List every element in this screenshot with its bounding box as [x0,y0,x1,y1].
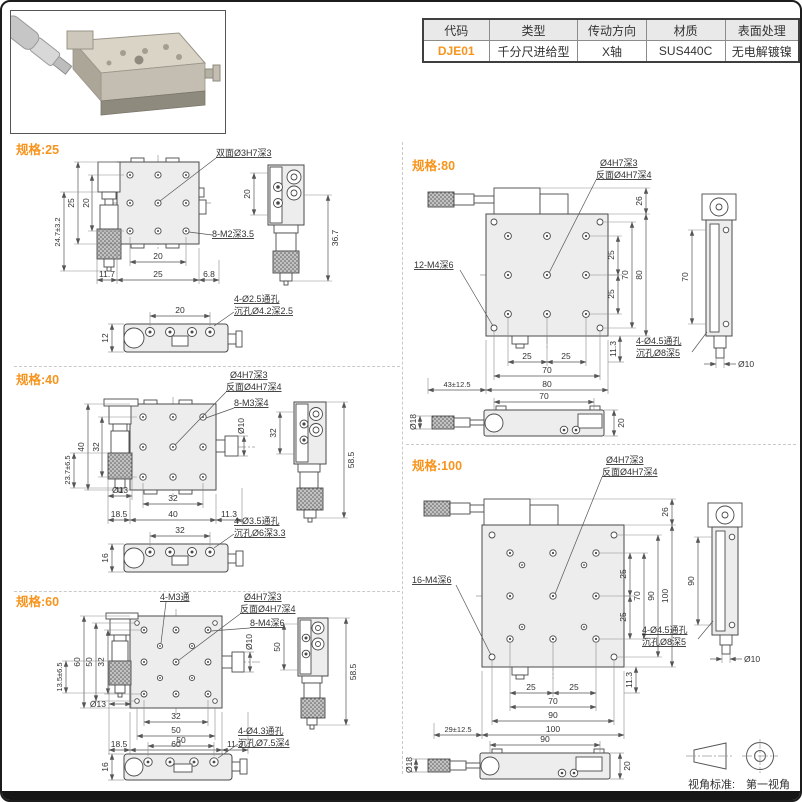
dim-micrometer: 29±12.5 [444,725,471,734]
callout-counterbore: 沉孔Ø6深3.3 [234,528,286,538]
side-view: 70 Ø10 4-Ø4.5通孔 沉孔Ø8深5 [636,194,754,369]
value-surface: 无电解镀镍 [725,41,799,63]
dim-pitch2: 25 [618,612,628,622]
dim-h-holes: 32 [91,442,101,452]
dim-base-height: 12 [100,333,110,343]
projection-value: 第一视角 [746,777,790,791]
dim-h-holes: 70 [632,591,642,601]
value-material: SUS440C [646,41,725,63]
dim-side-total: 36.7 [330,229,340,246]
callout-counterbore: 沉孔Ø8深5 [636,348,680,358]
dim-h-holes: 32 [96,657,106,667]
dim-side-holes: 70 [680,272,690,282]
callout-center-hole: Ø4H7深3 [230,370,268,380]
dim-side-diameter: Ø10 [744,654,760,664]
dim-knob-diameter: Ø10 [236,418,246,434]
dim-w-holes: 32 [171,711,181,721]
bottom-view: 70 Ø18 20 [408,391,626,436]
dim-base-width: 70 [539,391,549,401]
dim-mic-diameter: Ø13 [90,699,106,709]
product-photo-illustration [11,11,223,131]
dim-micrometer: 24.7±3.2 [53,217,62,246]
dim-side-holes: 32 [268,428,278,438]
dim-w-mic: 11.7 [99,269,115,279]
dim-knob-diameter: Ø10 [244,634,254,650]
bottom-view: 32 16 4-Ø3.5通孔 沉孔Ø6深3.3 [100,516,286,572]
callout-counterbore: 沉孔Ø8深5 [642,637,686,647]
section-spec-40: 规格:40 [12,368,392,592]
callout-through-hole: 4-Ø4.3通孔 [238,726,284,736]
section-title: 规格:100 [412,458,462,473]
value-type: 千分尺进给型 [489,41,578,63]
callout-grid-holes: 12-M4深6 [414,260,454,270]
front-view [428,188,618,348]
dim-mic-diameter: Ø13 [112,485,128,495]
dim-side-total: 58.5 [346,451,356,468]
dim-side-holes: 50 [272,642,282,652]
col-type: 类型 [489,19,578,41]
dim-w-outer: 40 [168,509,178,519]
callout-counterbore: 沉孔Ø4.2深2.5 [234,306,293,316]
dim-drop: 11.3 [608,341,618,357]
side-view: 32 58.5 [268,402,356,522]
callout-through-hole: 4-Ø4.5通孔 [636,336,682,346]
dim-w-right: 6.8 [203,269,215,279]
dim-w-holes: 70 [548,696,558,706]
callout-center-hole: 双面Ø3H7深3 [216,148,272,158]
dim-base-height: 16 [100,553,110,563]
section-title: 规格:40 [16,372,59,387]
micrometer-front [97,162,121,271]
dim-top: 26 [660,507,670,517]
column-separator [402,142,403,774]
callout-grid-holes: 8-M3深4 [234,398,269,408]
callout-center-hole: Ø4H7深3 [244,592,282,602]
callout-through-holes: 4-M3通 [160,592,190,602]
bottom-view: 20 12 4-Ø2.5通孔 沉孔Ø4.2深2.5 [100,294,293,352]
separator-80-100 [406,444,796,445]
callout-grid-holes: 8-M4深6 [250,618,285,628]
hole-grid [489,532,617,660]
dim-b2: 25 [561,351,571,361]
callout-center-hole-back: 反面Ø4H7深4 [226,382,282,392]
page-footer-bar [2,791,800,800]
callout-center-hole-back: 反面Ø4H7深4 [240,604,296,614]
dim-h-outer: 25 [66,198,76,208]
side-view: 50 58.5 [272,618,358,729]
section-spec-60: 规格:60 [12,592,392,788]
first-angle-symbol [686,739,778,773]
callout-grid-holes: 16-M4深6 [412,575,452,585]
col-drive: 传动方向 [578,19,646,41]
dim-w-mid: 90 [548,710,558,720]
micrometer-photo [11,11,75,78]
micrometer-top [424,499,558,525]
hole-grid [491,219,603,331]
dim-pitch2: 25 [606,289,616,299]
col-surface: 表面处理 [725,19,799,41]
dim-w-mic: 18.5 [111,509,128,519]
dim-base-width: 32 [175,525,185,535]
dim-h-outer: 60 [72,657,82,667]
bottom-view: 90 Ø18 20 [404,734,632,779]
dim-pitch1: 25 [606,250,616,260]
dim-w-mic: 18.5 [111,739,128,749]
callout-center-hole-back: 反面Ø4H7深4 [596,170,652,180]
dim-h-outer: 40 [76,442,86,452]
callout-through-hole: 4-Ø4.5通孔 [642,625,688,635]
dim-pitch1: 25 [618,569,628,579]
dim-base-height: 20 [616,418,626,428]
spec-value-row: DJE01 千分尺进给型 X轴 SUS440C 无电解镀镍 [423,41,799,63]
section-title: 规格:25 [16,142,59,157]
value-code: DJE01 [423,41,489,63]
micrometer-top [428,188,568,214]
front-view [106,609,260,715]
dim-side-holes: 90 [686,576,696,586]
col-code: 代码 [423,19,489,41]
dim-h-mid: 90 [646,591,656,601]
callout-through-hole: 4-Ø3.5通孔 [234,516,280,526]
dim-h-holes: 70 [620,270,630,280]
front-view [104,397,255,497]
callout-center-hole-back: 反面Ø4H7深4 [602,467,658,477]
dim-base-diameter: Ø18 [404,757,414,773]
dim-top: 26 [634,196,644,206]
dim-b1: 25 [526,682,536,692]
callout-corner-holes: 8-M2深3.5 [212,229,254,239]
dim-b2: 25 [569,682,579,692]
dim-w-mid: 50 [171,725,181,735]
dim-side-diameter: Ø10 [738,359,754,369]
dim-w-outer: 100 [546,724,560,734]
section-title: 规格:60 [16,594,59,609]
dim-b1: 25 [522,351,532,361]
section-spec-25: 规格:25 [12,140,392,366]
dim-h-outer: 80 [634,270,644,280]
dim-w-holes: 32 [168,493,178,503]
dim-w-outer: 25 [153,269,163,279]
spec-header-row: 代码 类型 传动方向 材质 表面处理 [423,19,799,41]
callout-counterbore: 沉孔Ø7.5深4 [238,738,290,748]
dim-side-total: 58.5 [348,663,358,680]
dim-base-width: 20 [175,305,185,315]
dim-base-height: 16 [100,762,110,772]
dim-h-holes: 20 [81,198,91,208]
dim-w-outer: 80 [542,379,552,389]
callout-center-hole: Ø4H7深3 [606,455,644,465]
bottom-view: 50 16 4-Ø4.3通孔 沉孔Ø7.5深4 [100,726,290,780]
value-drive: X轴 [578,41,646,63]
dim-w-holes: 70 [542,365,552,375]
dim-base-width: 90 [540,734,550,744]
dim-side-holes: 20 [242,189,252,199]
callout-through-hole: 4-Ø2.5通孔 [234,294,280,304]
projection-label: 视角标准: [688,777,735,791]
dim-base-diameter: Ø18 [408,414,418,430]
dim-h-outer: 100 [660,589,670,603]
front-view [424,499,630,679]
section-spec-80: 规格:80 [404,152,796,444]
dim-micrometer: 23.7±6.5 [63,455,72,484]
callout-center-hole: Ø4H7深3 [600,158,638,168]
separator-25-40 [14,366,400,367]
col-material: 材质 [646,19,725,41]
dim-h-mid: 50 [84,657,94,667]
product-photo [10,10,226,134]
catalog-page: 代码 类型 传动方向 材质 表面处理 DJE01 千分尺进给型 X轴 SUS44… [0,0,802,802]
side-view: 90 Ø10 4-Ø4.5通孔 沉孔Ø8深5 [642,503,760,664]
dim-micrometer: 43±12.5 [443,380,470,389]
side-view: 20 36.7 [242,165,340,285]
projection-standard: 视角标准: 第一视角 [642,738,797,792]
dim-w-holes: 20 [153,251,163,261]
dim-base-width: 50 [176,735,186,745]
section-title: 规格:80 [412,158,455,173]
product-spec-table: 代码 类型 传动方向 材质 表面处理 DJE01 千分尺进给型 X轴 SUS44… [422,18,800,63]
dim-drop: 11.3 [624,672,634,688]
dim-micrometer: 13.5±6.5 [55,662,64,691]
stage-photo [73,33,220,115]
dim-base-height: 20 [622,761,632,771]
